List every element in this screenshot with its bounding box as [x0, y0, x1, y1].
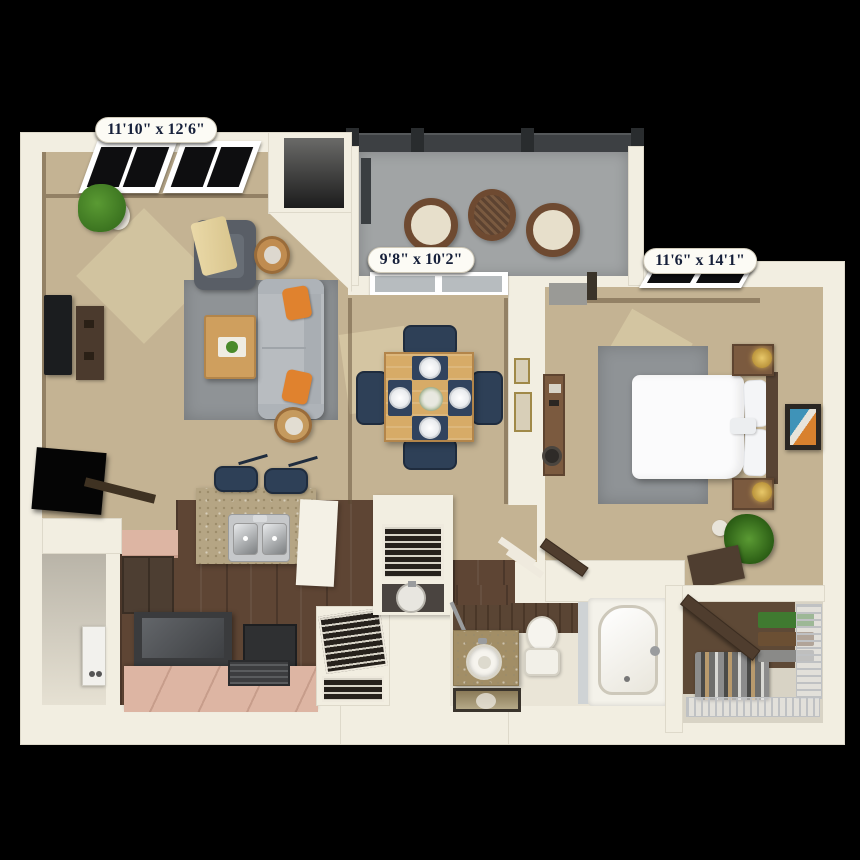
dinner-plate	[419, 357, 441, 379]
living-room-dimension-text: 11'10" x 12'6"	[107, 121, 205, 138]
dining-table	[384, 352, 474, 442]
media-console	[76, 306, 104, 380]
range-top	[142, 618, 224, 658]
sink-drain	[272, 536, 277, 541]
vanity-mirror	[453, 688, 521, 712]
water-heater-tank	[396, 583, 426, 613]
closet-left-wall	[665, 585, 683, 733]
bathroom-wood-paneling	[453, 603, 578, 633]
wall-art-frame	[514, 358, 530, 384]
balcony-right-wall	[628, 146, 644, 286]
headboard	[766, 372, 778, 484]
patio-table	[468, 189, 516, 241]
corner-closet-alcove	[284, 138, 344, 208]
appliance-knob	[96, 671, 102, 677]
double-sink	[228, 514, 290, 562]
kitchen-upper-cabinet	[122, 530, 178, 558]
vanity-sink	[466, 644, 502, 680]
bathtub-faucet	[650, 646, 660, 656]
desk-item	[549, 400, 559, 406]
cabinet-seam	[148, 558, 150, 612]
nightstand-lamp	[752, 348, 772, 368]
bedroom-corner-closet	[549, 283, 587, 305]
dining-dimension-text: 9'8" x 10'2"	[380, 251, 463, 268]
dinner-plate	[449, 387, 471, 409]
sink-bowl-ring	[478, 656, 491, 669]
dining-dimension-label: 9'8" x 10'2"	[368, 247, 475, 273]
floor-plan-scene: 11'10" x 12'6" 9'8" x 10'2" 11'6" x 14'1…	[0, 0, 860, 860]
bedroom-dimension-label: 11'6" x 14'1"	[643, 248, 757, 274]
table-centerpiece	[419, 387, 443, 411]
orange-throw-pillow	[281, 285, 312, 321]
toilet-tank	[524, 648, 560, 676]
bathtub-drain	[624, 676, 630, 682]
bedroom-bottom-wall	[545, 560, 685, 602]
vanity-faucet	[478, 638, 487, 644]
washer-appliance	[82, 626, 106, 686]
desk-item	[549, 384, 561, 393]
patio-chair	[404, 198, 458, 252]
dining-chair	[403, 438, 457, 470]
ac-louver-panel	[318, 608, 387, 674]
wire-shelf-right	[796, 604, 822, 699]
floor-vent-grate	[322, 676, 384, 702]
baseboard-trim	[348, 298, 352, 504]
bar-stool	[214, 466, 258, 492]
wall-tv	[44, 295, 72, 375]
table-lamp	[264, 246, 281, 264]
entry-top-wall	[42, 518, 122, 554]
balcony-wall-panel	[361, 158, 371, 224]
wire-shelf-bottom	[686, 697, 820, 717]
dining-chair	[471, 371, 503, 425]
mirror-reflection	[476, 693, 496, 709]
glass-pane	[375, 276, 435, 292]
sofa-cushion-seam	[262, 347, 306, 349]
table-lamp	[285, 417, 303, 435]
sink-faucet	[253, 515, 267, 522]
framed-artwork	[785, 404, 821, 450]
patio-chair	[526, 203, 580, 257]
appliance-knob	[89, 671, 95, 677]
baseboard-trim	[584, 298, 760, 303]
artwork-canvas	[790, 409, 816, 445]
sink-drain	[243, 536, 248, 541]
refrigerator-cabinet	[122, 556, 174, 614]
dinner-plate	[419, 417, 441, 439]
counter-white-edge	[296, 499, 338, 587]
utility-closet-louver-door	[382, 524, 444, 580]
nightstand-lamp	[752, 482, 772, 502]
bathroom-doorway	[456, 585, 510, 605]
bed-duvet	[632, 375, 744, 479]
coffee-table-plant	[226, 341, 238, 353]
sliding-glass-door	[370, 272, 508, 296]
baseboard-trim	[504, 298, 508, 504]
console-item	[84, 320, 94, 328]
bar-stool	[264, 468, 308, 494]
bed-accent-pillow	[730, 418, 756, 434]
glass-pane	[442, 276, 502, 292]
living-room-dimension-label: 11'10" x 12'6"	[95, 117, 217, 143]
bathtub	[588, 598, 668, 706]
coffee-table	[204, 315, 256, 379]
bedroom-door-strip	[587, 272, 597, 300]
toilet-bowl	[526, 616, 558, 652]
round-side-table	[274, 407, 312, 443]
console-item	[84, 352, 94, 360]
cooktop-grate	[228, 660, 290, 686]
dinner-plate	[389, 387, 411, 409]
bedroom-dimension-text: 11'6" x 14'1"	[655, 252, 745, 269]
wall-art-frame	[514, 392, 532, 432]
water-heater-pipe	[408, 581, 416, 587]
round-side-table	[254, 236, 290, 274]
desk-stool	[542, 446, 562, 466]
